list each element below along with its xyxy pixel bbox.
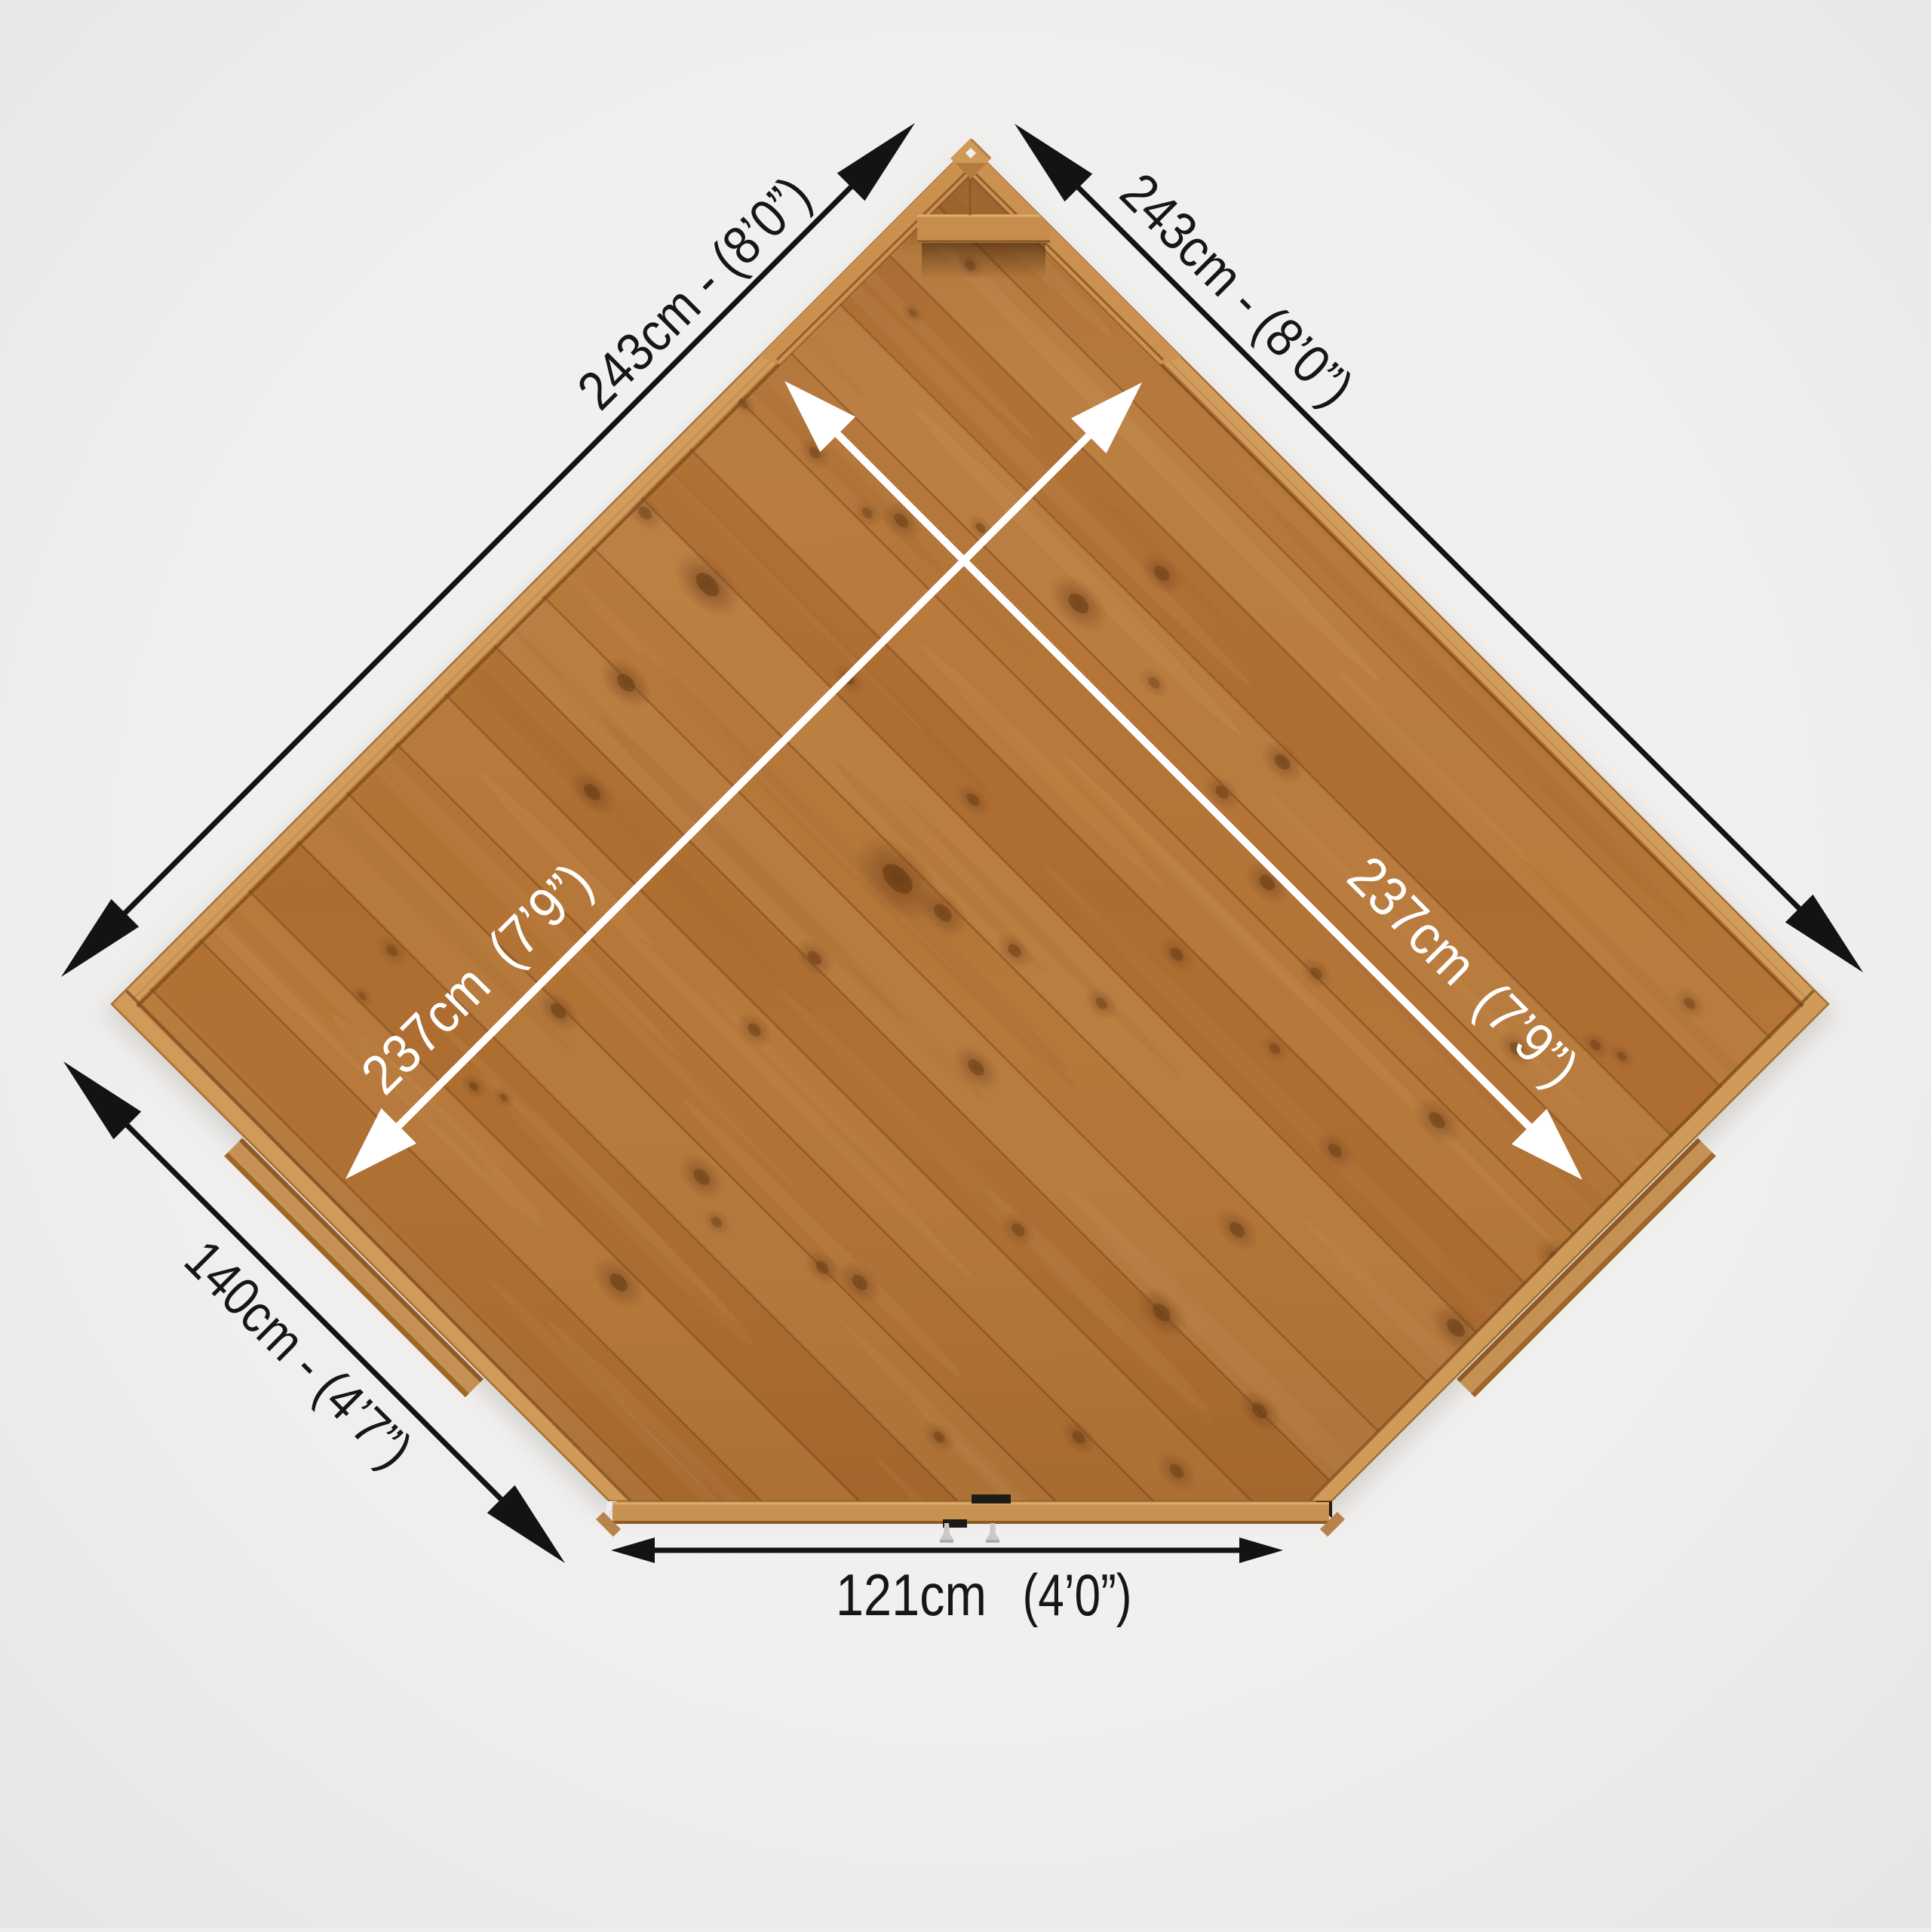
svg-text:(4’0”): (4’0”) [1023, 1562, 1132, 1628]
svg-text:121cm: 121cm [836, 1562, 987, 1628]
